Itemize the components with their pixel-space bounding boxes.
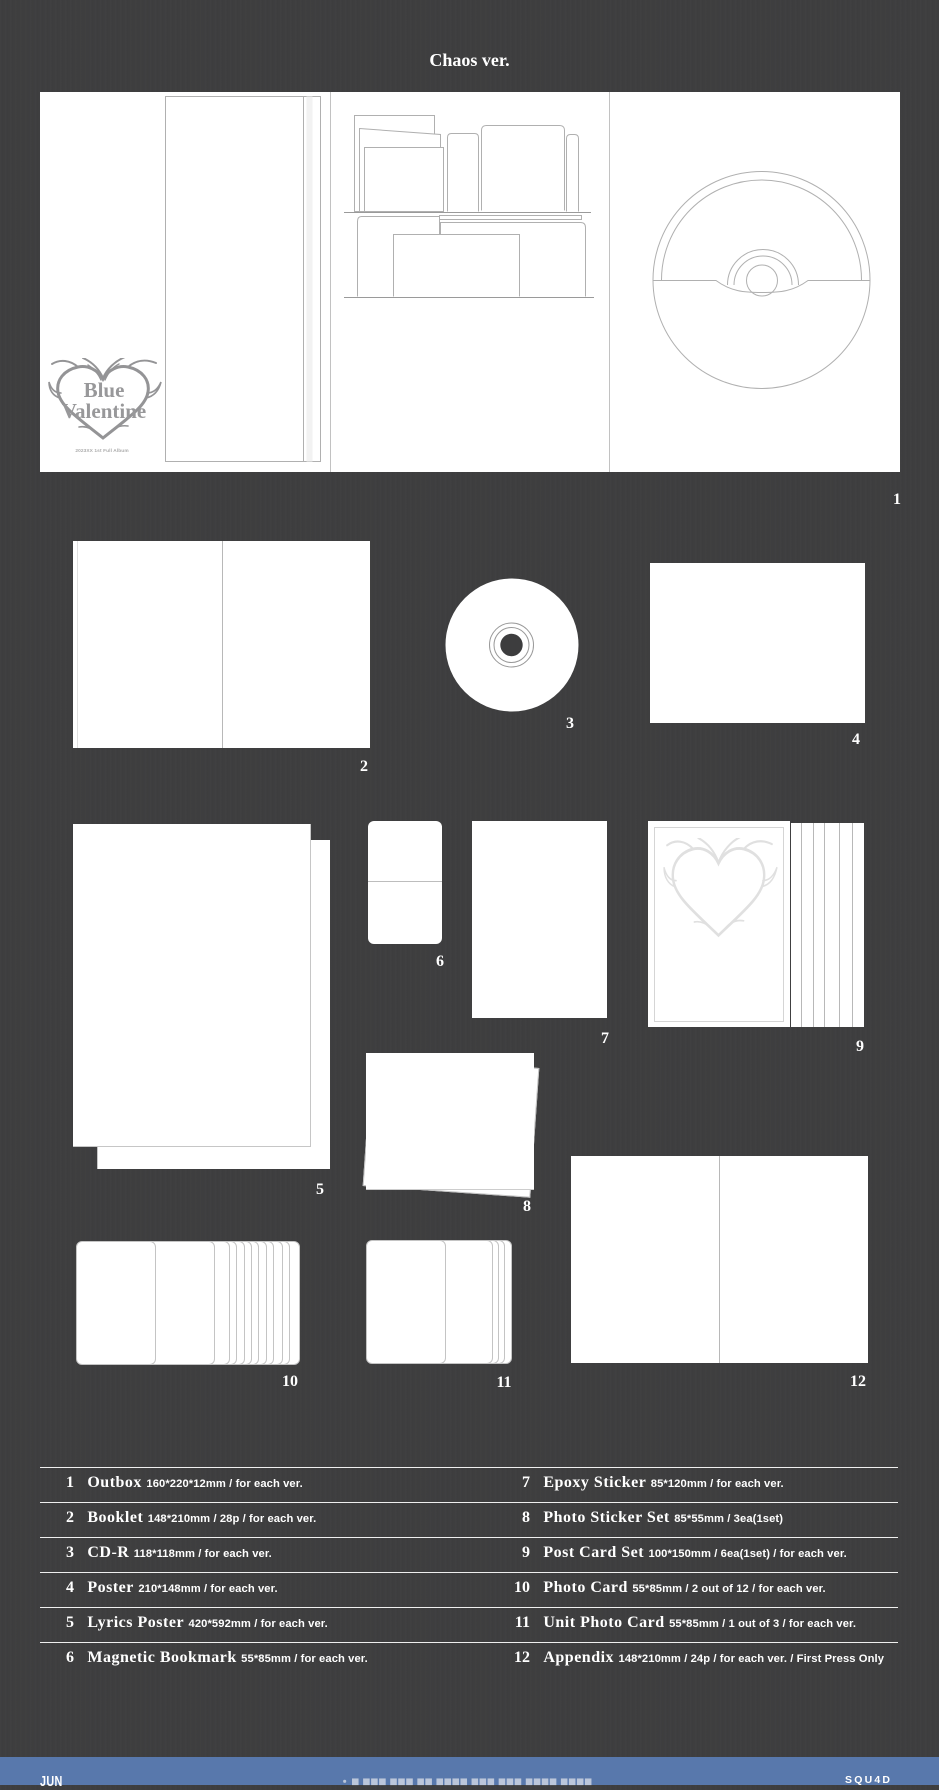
svg-text:Valentine: Valentine [62, 399, 146, 423]
